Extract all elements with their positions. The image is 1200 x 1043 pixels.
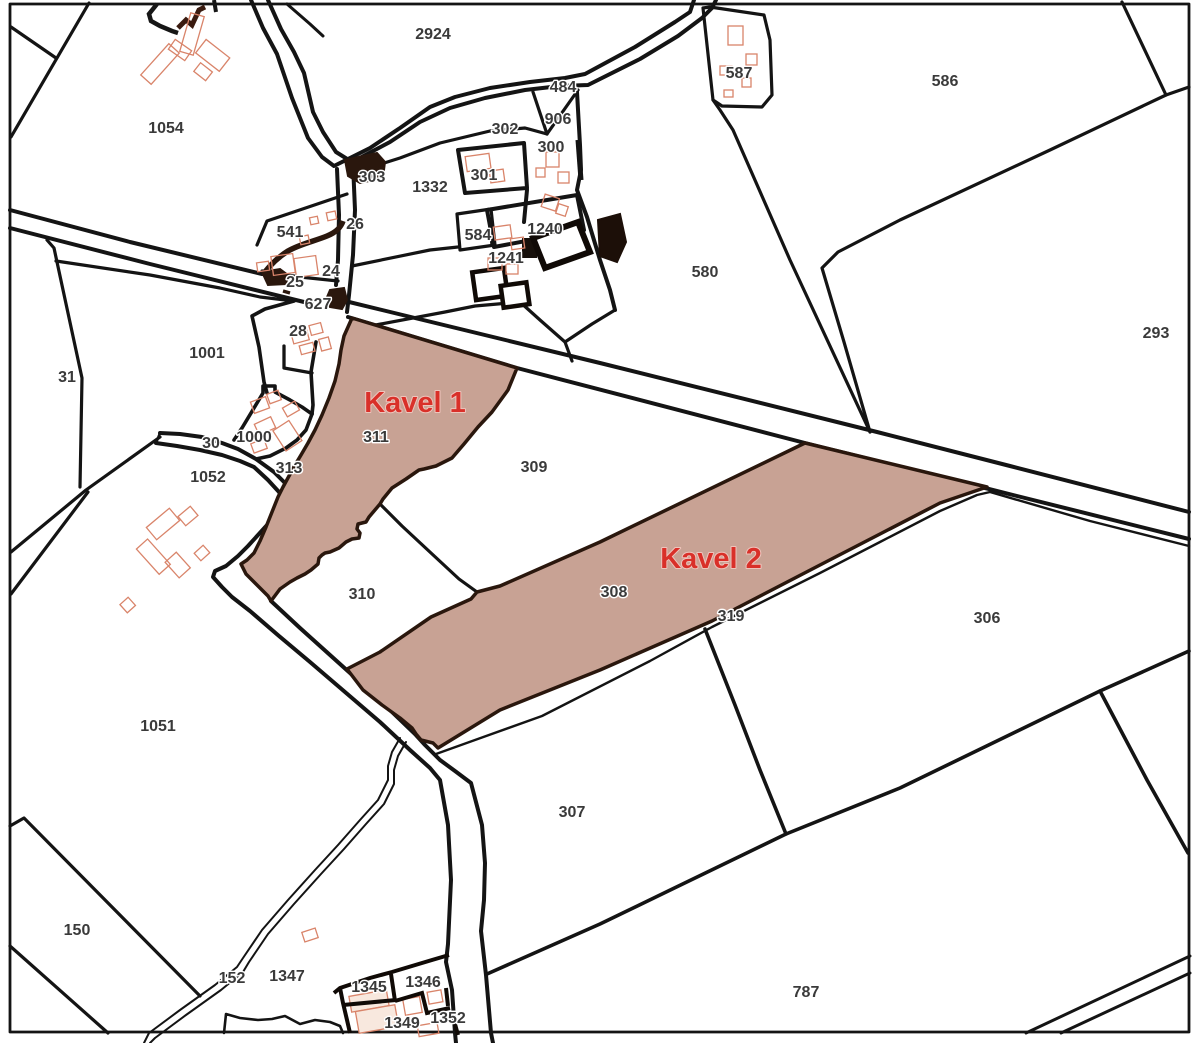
svg-text:584: 584 (465, 227, 492, 244)
svg-text:2924: 2924 (415, 26, 451, 43)
svg-text:319: 319 (718, 608, 745, 625)
svg-text:586: 586 (932, 73, 959, 90)
svg-text:1000: 1000 (236, 429, 272, 446)
svg-text:541: 541 (277, 224, 304, 241)
svg-text:1054: 1054 (148, 120, 184, 137)
svg-text:303: 303 (359, 169, 386, 186)
svg-text:1345: 1345 (351, 979, 387, 996)
svg-text:313: 313 (276, 460, 303, 477)
svg-text:293: 293 (1143, 325, 1170, 342)
svg-text:31: 31 (58, 369, 76, 386)
svg-text:1346: 1346 (405, 974, 441, 991)
svg-text:300: 300 (538, 139, 565, 156)
svg-text:28: 28 (289, 323, 307, 340)
svg-text:306: 306 (974, 610, 1001, 627)
svg-text:1332: 1332 (412, 179, 448, 196)
svg-text:152: 152 (219, 970, 246, 987)
svg-text:26: 26 (346, 216, 364, 233)
svg-text:30: 30 (202, 435, 220, 452)
svg-text:1001: 1001 (189, 345, 225, 362)
svg-text:1347: 1347 (269, 968, 305, 985)
svg-text:309: 309 (521, 459, 548, 476)
svg-text:1051: 1051 (140, 718, 176, 735)
svg-text:Kavel 2: Kavel 2 (660, 543, 762, 575)
svg-text:308: 308 (601, 584, 628, 601)
svg-text:1240: 1240 (527, 221, 563, 238)
svg-text:311: 311 (363, 429, 389, 446)
svg-text:310: 310 (349, 586, 376, 603)
svg-text:1352: 1352 (430, 1010, 466, 1027)
svg-text:787: 787 (793, 984, 820, 1001)
svg-text:301: 301 (471, 167, 498, 184)
svg-text:25: 25 (286, 274, 304, 291)
svg-text:307: 307 (559, 804, 586, 821)
svg-text:150: 150 (64, 922, 91, 939)
svg-text:1052: 1052 (190, 469, 226, 486)
svg-text:627: 627 (305, 296, 332, 313)
svg-text:580: 580 (692, 264, 719, 281)
svg-text:24: 24 (322, 263, 340, 280)
svg-text:1349: 1349 (384, 1015, 420, 1032)
svg-text:587: 587 (726, 65, 753, 82)
svg-text:Kavel 1: Kavel 1 (364, 387, 466, 419)
svg-text:1241: 1241 (488, 250, 524, 267)
svg-text:484: 484 (550, 79, 577, 96)
svg-text:906: 906 (545, 111, 572, 128)
svg-text:302: 302 (492, 121, 519, 138)
